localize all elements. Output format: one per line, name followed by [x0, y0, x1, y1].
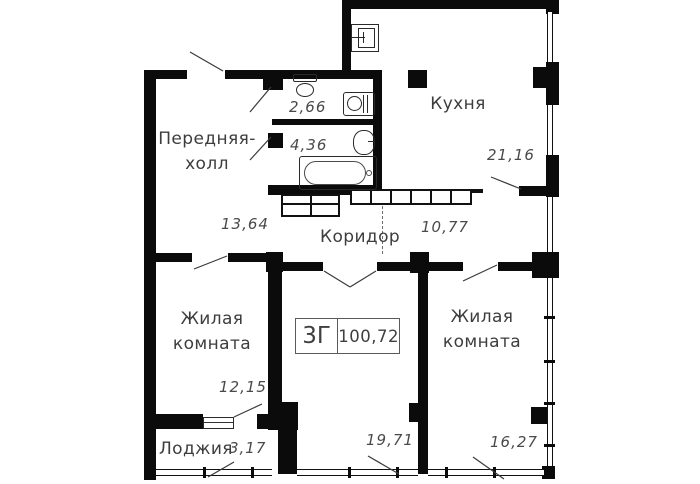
- wall-mid-d: [377, 262, 411, 271]
- apartment-stamp: 3Г 100,72: [295, 318, 400, 354]
- hall-label: Передняя-холл: [148, 127, 266, 176]
- wall-right-pier-2: [546, 62, 559, 105]
- wc-door-leaf: [250, 87, 271, 112]
- window-right-4: [547, 278, 553, 466]
- hall-area: 13,64: [221, 215, 269, 233]
- window-right-2: [547, 105, 553, 155]
- living-mid-door-leaf-a: [324, 271, 350, 287]
- closet-row-corridor: [350, 189, 472, 205]
- wall-kitchen-west: [342, 0, 351, 79]
- wall-wc-pier-mid: [268, 133, 283, 148]
- wall-living-mid-east: [418, 271, 428, 474]
- apartment-type-cell: 3Г: [296, 319, 338, 353]
- apartment-total-area-cell: 100,72: [338, 319, 399, 353]
- window-mullion-tick: [348, 467, 351, 478]
- wall-loggia-north-b: [257, 414, 271, 429]
- window-living-mid-bottom: [297, 469, 418, 476]
- corridor-label: Коридор: [320, 225, 400, 250]
- wall-mid-e: [429, 262, 463, 271]
- wc-area: 2,66: [289, 98, 326, 116]
- wall-right-pier-2-bump: [533, 67, 547, 88]
- window-mullion-tick: [544, 402, 555, 405]
- window-mullion-tick: [445, 467, 448, 478]
- entrance-door-leaf: [190, 52, 223, 71]
- wall-mid-c: [283, 262, 323, 271]
- wall-loggia-corner: [268, 402, 298, 430]
- closet-grid-bottom-row: [281, 203, 340, 217]
- living-mid-door-leaf-b: [350, 271, 376, 287]
- living-left-label: Жилая комната: [162, 307, 262, 356]
- window-mullion-tick: [396, 467, 399, 478]
- living-mid-area: 19,71: [366, 431, 414, 449]
- wall-kitchen-top: [342, 0, 559, 9]
- bathtub-icon: [299, 156, 377, 190]
- kitchen-area: 21,16: [487, 146, 535, 164]
- kitchen-entry-leader-line: [491, 177, 521, 189]
- window-mullion-tick: [544, 316, 555, 319]
- window-mullion-tick: [203, 467, 206, 478]
- wall-living-left-east: [268, 262, 282, 404]
- loggia-area: 3,17: [229, 439, 266, 457]
- bathroom-area: 4,36: [290, 136, 327, 154]
- living-right-door-leaf: [463, 265, 497, 281]
- wall-loggia-north: [156, 414, 203, 429]
- wall-mid-f: [498, 262, 532, 271]
- window-right-3: [547, 197, 553, 252]
- window-mullion-tick: [544, 360, 555, 363]
- kitchen-sink-icon: [351, 24, 379, 52]
- window-mullion-tick: [544, 444, 555, 447]
- wall-kitchen-south: [519, 186, 548, 196]
- sink-icon: [353, 130, 375, 155]
- window-mullion-tick: [251, 467, 254, 478]
- balcony-window: [203, 417, 234, 429]
- balcony-window-sill-line: [204, 422, 233, 423]
- floor-plan: Передняя-холл 13,64 2,66 4,36 Кухня 21,1…: [0, 0, 700, 484]
- corridor-area: 10,77: [421, 218, 469, 236]
- window-mullion-tick: [493, 467, 496, 478]
- wall-mid-a: [156, 253, 192, 262]
- wall-wc-bath-divider: [272, 119, 373, 125]
- wall-loggia-east: [278, 430, 297, 474]
- wall-living-mid-pier: [409, 403, 428, 422]
- toilet-icon: [293, 74, 317, 97]
- living-left-area: 12,15: [219, 378, 267, 396]
- window-loggia-bottom: [156, 469, 272, 476]
- living-left-door-leaf: [194, 256, 227, 269]
- kitchen-label: Кухня: [418, 92, 498, 117]
- window-right-1: [547, 12, 553, 62]
- living-right-label: Жилая комната: [436, 305, 528, 354]
- loggia-label: Лоджия: [159, 437, 233, 462]
- wall-mid-b: [228, 253, 268, 262]
- wall-wc-pier-top: [263, 70, 283, 90]
- wall-right-corner-pier: [532, 252, 559, 278]
- kitchen-column: [408, 70, 427, 88]
- washing-machine-icon: [343, 92, 375, 116]
- living-right-area: 16,27: [490, 433, 538, 451]
- wall-mid-pier-right: [410, 252, 429, 273]
